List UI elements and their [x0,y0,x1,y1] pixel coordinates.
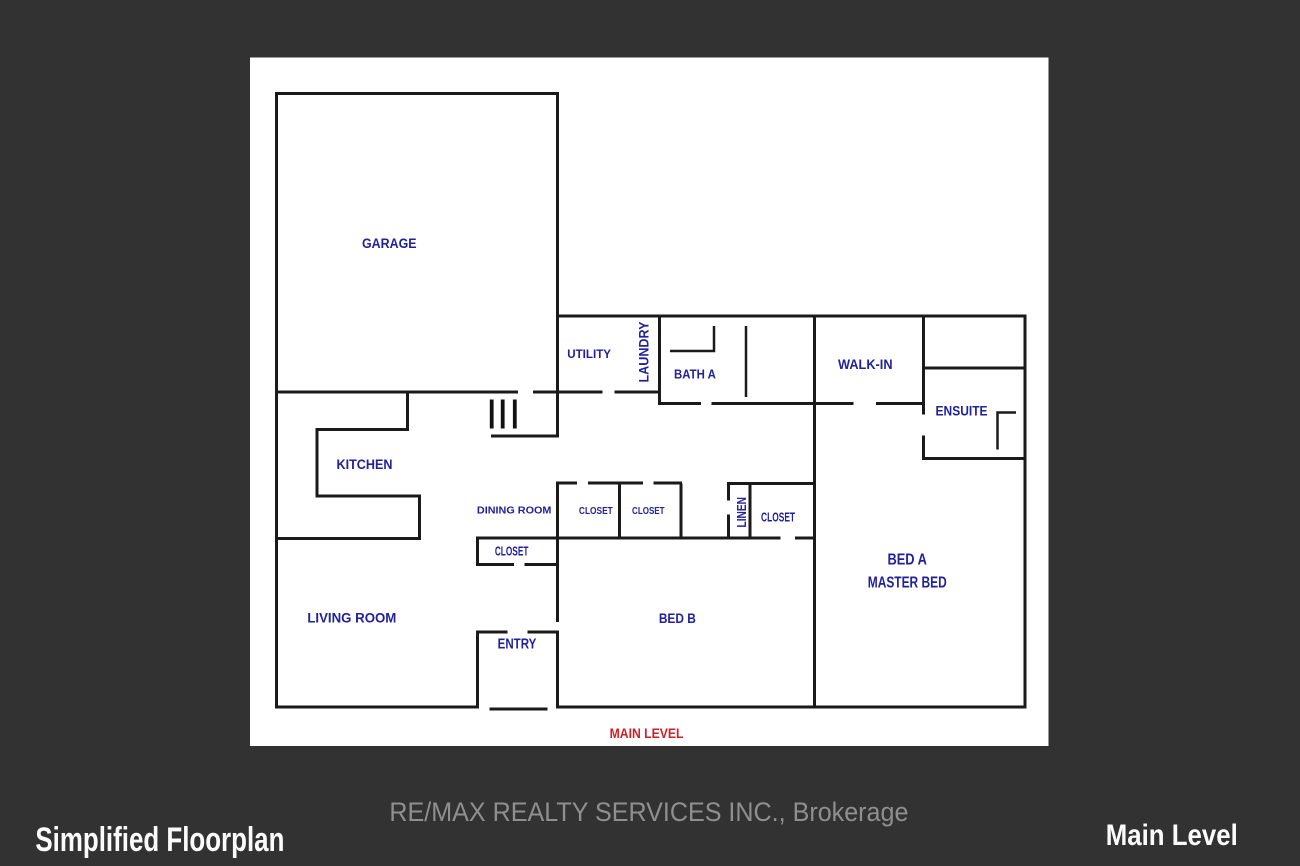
svg-text:Simplified Floorplan: Simplified Floorplan [35,821,284,859]
svg-text:BED B: BED B [659,610,696,626]
svg-text:DINING ROOM: DINING ROOM [477,504,552,516]
svg-text:MASTER BED: MASTER BED [868,575,947,592]
svg-text:RE/MAX REALTY SERVICES INC., B: RE/MAX REALTY SERVICES INC., Brokerage [389,797,908,827]
svg-text:KITCHEN: KITCHEN [337,456,393,472]
svg-text:BED A: BED A [887,551,927,568]
svg-text:WALK-IN: WALK-IN [838,357,893,372]
svg-text:LIVING ROOM: LIVING ROOM [307,610,396,625]
svg-text:LAUNDRY: LAUNDRY [636,321,652,383]
svg-text:ENTRY: ENTRY [498,636,537,653]
svg-text:CLOSET: CLOSET [495,545,529,559]
svg-text:CLOSET: CLOSET [579,506,613,517]
svg-text:MAIN LEVEL: MAIN LEVEL [610,725,684,741]
svg-text:UTILITY: UTILITY [567,347,611,361]
svg-text:ENSUITE: ENSUITE [936,404,988,419]
svg-text:CLOSET: CLOSET [632,506,665,517]
svg-text:LINEN: LINEN [734,497,749,528]
svg-text:GARAGE: GARAGE [362,236,417,251]
svg-text:BATH A: BATH A [674,366,716,381]
svg-text:CLOSET: CLOSET [761,510,795,525]
svg-text:Main Level: Main Level [1106,819,1238,852]
